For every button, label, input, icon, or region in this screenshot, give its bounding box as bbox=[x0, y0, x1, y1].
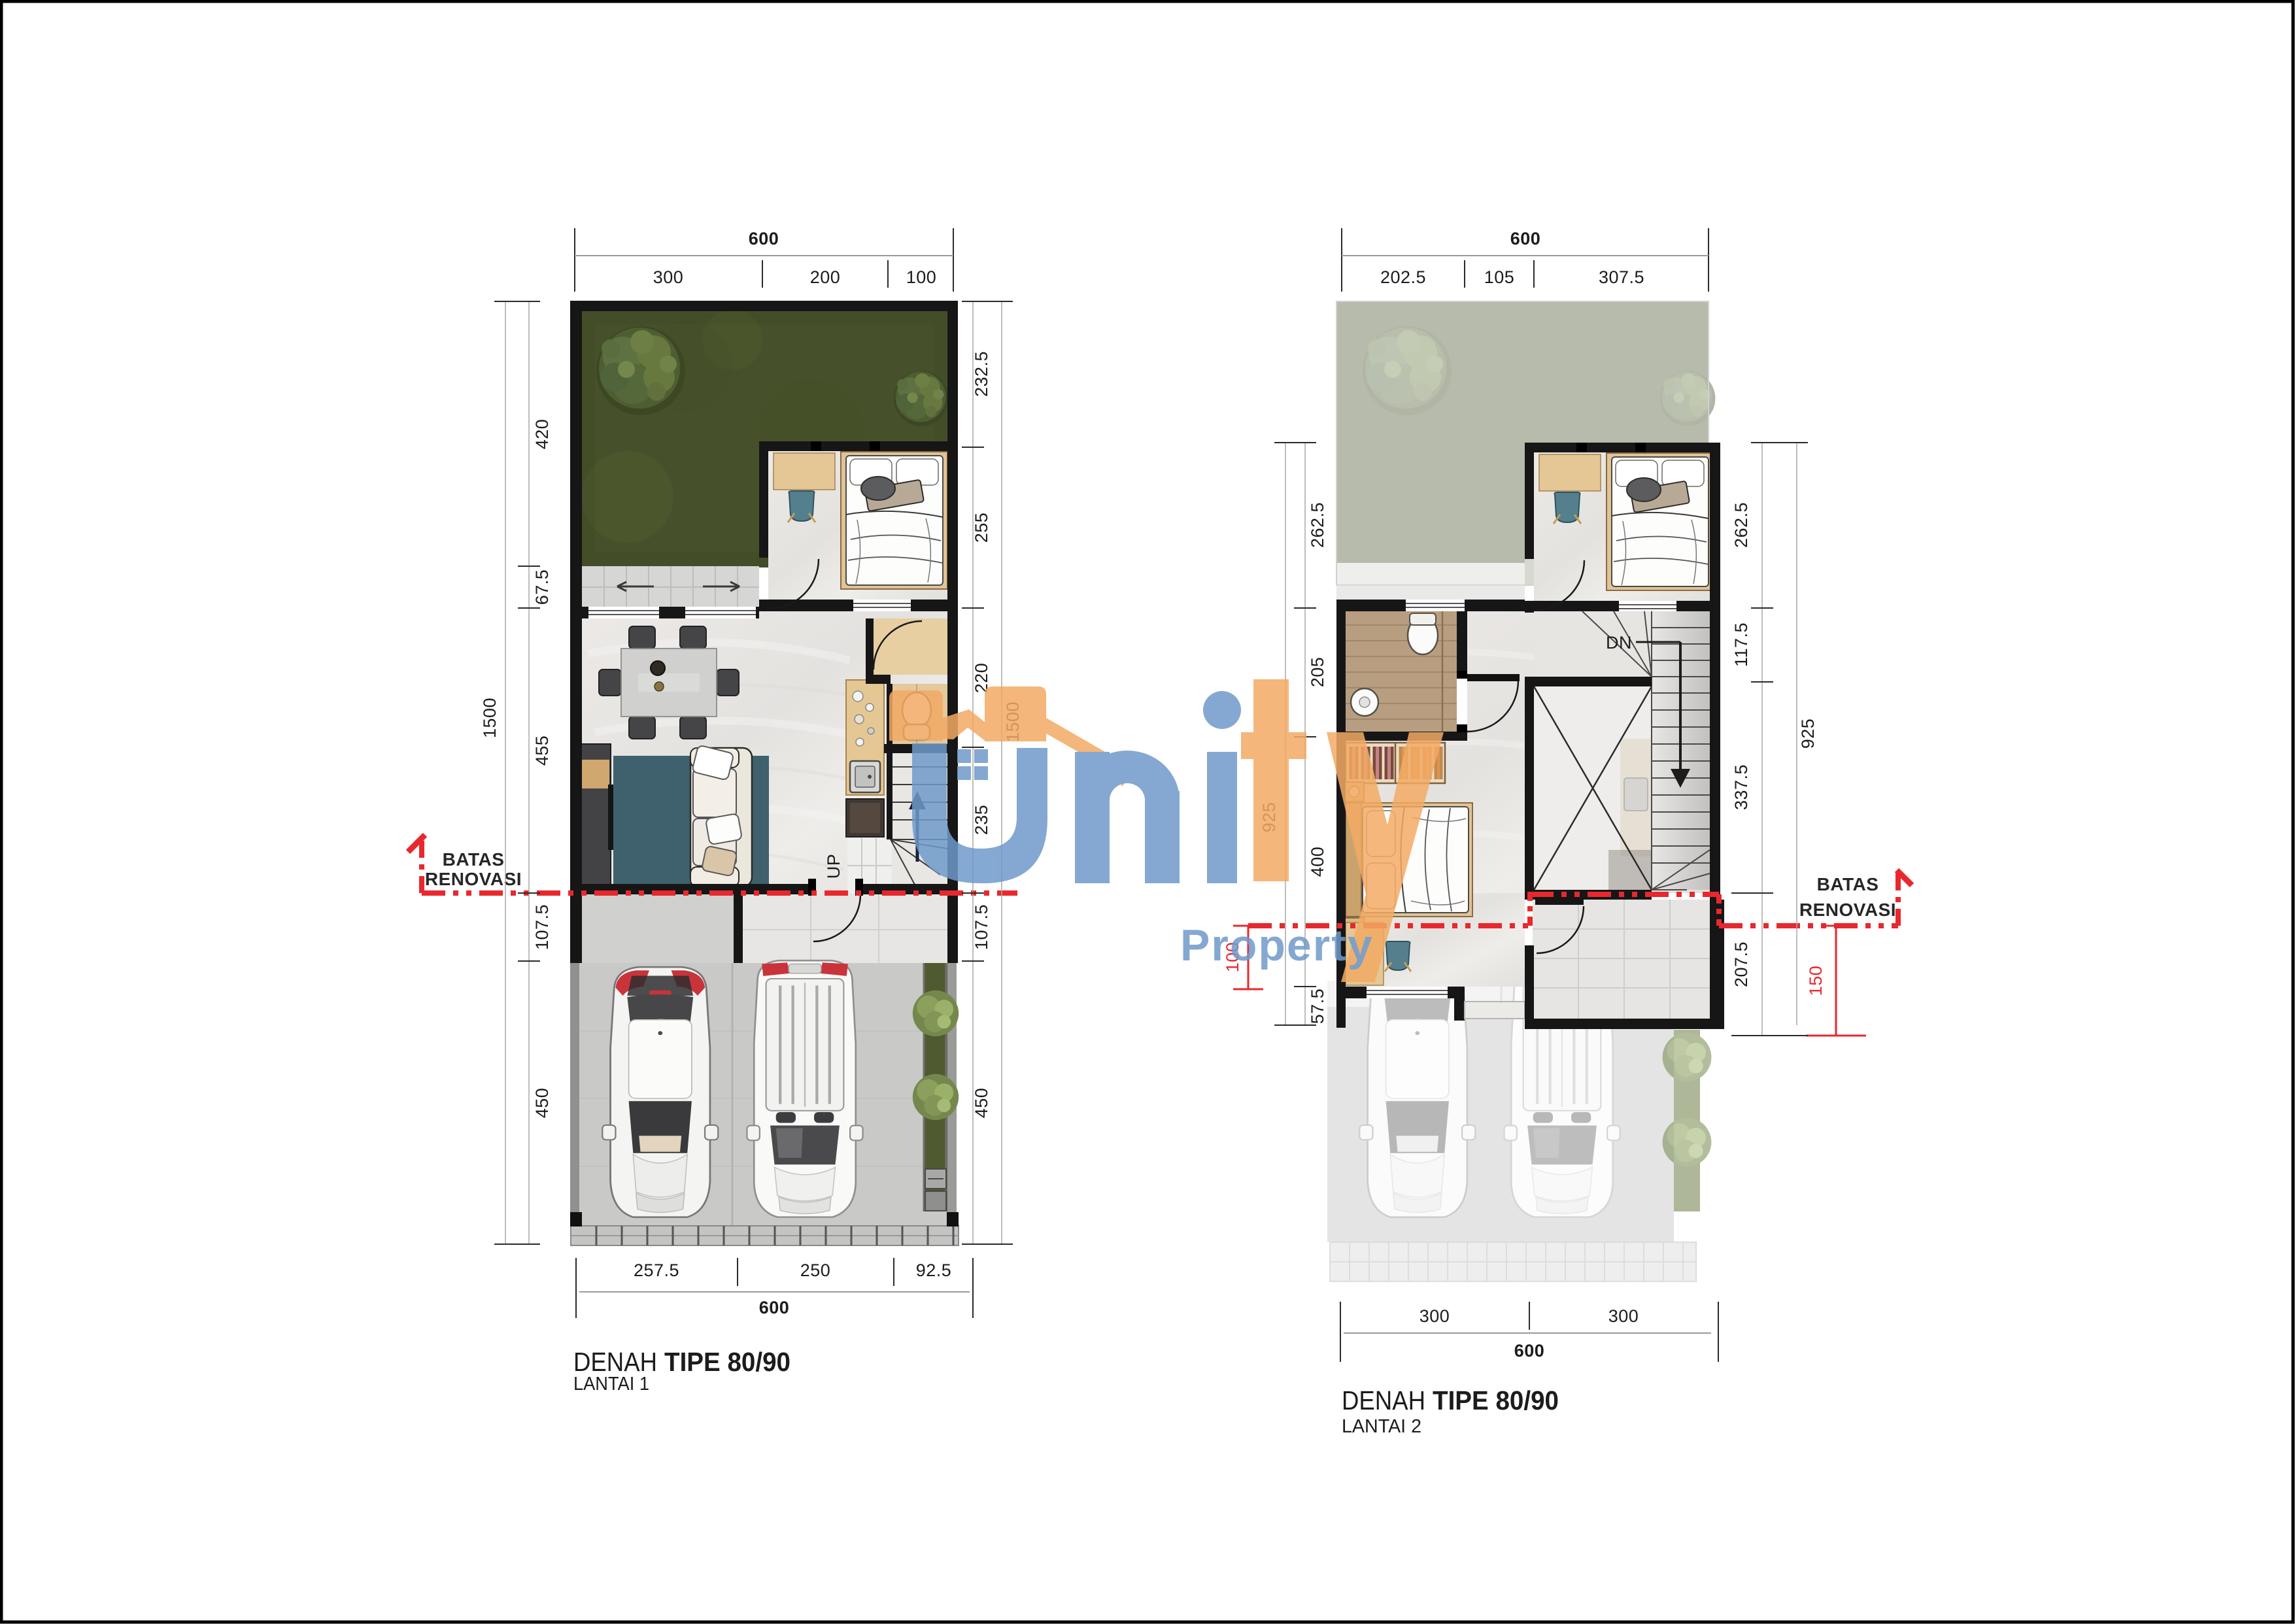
svg-text:LANTAI 1: LANTAI 1 bbox=[573, 1374, 649, 1395]
svg-text:255: 255 bbox=[972, 513, 991, 543]
svg-text:600: 600 bbox=[1514, 1341, 1545, 1361]
svg-text:105: 105 bbox=[1484, 267, 1515, 287]
svg-text:150: 150 bbox=[1806, 966, 1826, 996]
svg-text:207.5: 207.5 bbox=[1731, 941, 1751, 987]
svg-text:450: 450 bbox=[532, 1088, 552, 1119]
svg-text:RENOVASI: RENOVASI bbox=[1799, 900, 1896, 920]
svg-text:455: 455 bbox=[532, 736, 552, 766]
svg-text:1500: 1500 bbox=[480, 698, 500, 738]
svg-text:UP: UP bbox=[824, 854, 843, 879]
svg-text:DENAH: DENAH bbox=[1342, 1385, 1425, 1415]
svg-text:600: 600 bbox=[749, 229, 779, 248]
svg-text:262.5: 262.5 bbox=[1308, 502, 1327, 548]
svg-text:235: 235 bbox=[972, 805, 991, 836]
svg-text:92.5: 92.5 bbox=[916, 1260, 952, 1280]
svg-text:107.5: 107.5 bbox=[532, 904, 552, 950]
svg-text:232.5: 232.5 bbox=[972, 351, 991, 397]
svg-text:420: 420 bbox=[532, 419, 552, 450]
svg-text:57.5: 57.5 bbox=[1308, 989, 1327, 1024]
svg-text:400: 400 bbox=[1308, 847, 1327, 877]
svg-text:117.5: 117.5 bbox=[1731, 622, 1751, 667]
svg-text:TIPE 80/90: TIPE 80/90 bbox=[664, 1347, 790, 1377]
svg-text:600: 600 bbox=[1510, 229, 1541, 248]
svg-text:100: 100 bbox=[906, 267, 937, 287]
svg-text:300: 300 bbox=[1419, 1306, 1450, 1326]
svg-text:925: 925 bbox=[1798, 719, 1818, 749]
svg-text:TIPE 80/90: TIPE 80/90 bbox=[1433, 1385, 1559, 1415]
svg-text:LANTAI 2: LANTAI 2 bbox=[1342, 1416, 1421, 1437]
svg-text:600: 600 bbox=[759, 1298, 790, 1317]
svg-text:202.5: 202.5 bbox=[1380, 267, 1426, 287]
svg-text:DN: DN bbox=[1606, 633, 1632, 652]
svg-text:RENOVASI: RENOVASI bbox=[425, 869, 522, 889]
svg-text:300: 300 bbox=[653, 267, 684, 287]
svg-text:300: 300 bbox=[1608, 1306, 1639, 1326]
svg-text:BATAS: BATAS bbox=[443, 849, 505, 870]
svg-text:262.5: 262.5 bbox=[1731, 502, 1751, 548]
svg-text:337.5: 337.5 bbox=[1731, 764, 1751, 810]
svg-text:250: 250 bbox=[800, 1260, 831, 1280]
svg-text:200: 200 bbox=[810, 267, 841, 287]
svg-text:DENAH: DENAH bbox=[573, 1347, 657, 1377]
svg-text:67.5: 67.5 bbox=[532, 569, 552, 605]
svg-text:Property: Property bbox=[1180, 921, 1374, 970]
svg-text:307.5: 307.5 bbox=[1599, 267, 1644, 287]
svg-text:BATAS: BATAS bbox=[1817, 874, 1879, 894]
svg-text:257.5: 257.5 bbox=[634, 1260, 679, 1280]
svg-text:450: 450 bbox=[972, 1088, 991, 1119]
svg-text:205: 205 bbox=[1308, 657, 1327, 688]
svg-text:107.5: 107.5 bbox=[972, 904, 991, 950]
